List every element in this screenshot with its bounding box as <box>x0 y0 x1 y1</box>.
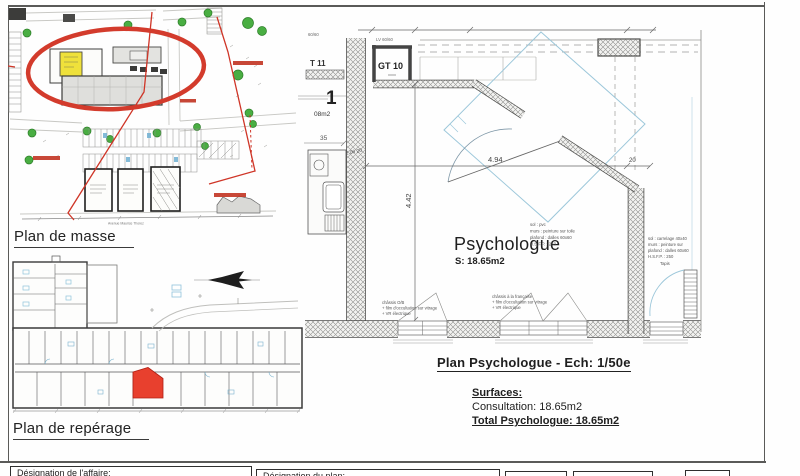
dim-442-text: 4.42 <box>404 193 413 208</box>
bottom-dimension-line <box>22 214 273 221</box>
reference-plan-title: Plan de repérage <box>13 420 149 440</box>
window-sills <box>393 340 688 343</box>
diagonal-door <box>448 129 560 182</box>
svg-text:murs : peinture sur toile: murs : peinture sur toile <box>530 229 576 234</box>
adjacent-room-specs: sol : carrelage 40x40 murs : peinture su… <box>648 236 689 266</box>
street-name: Avenue Maurice Thorez <box>108 222 144 226</box>
dim-20-text: 20 <box>629 158 636 164</box>
svg-text:+ VR électrique: + VR électrique <box>382 311 411 316</box>
surfaces-total: Total Psychologue: 18.65m2 <box>472 415 619 427</box>
svg-text:sol : pvc: sol : pvc <box>530 222 547 227</box>
dark-building-small <box>63 14 75 22</box>
plan-sheet: Avenue Maurice Thorez Plan de masse <box>0 0 800 476</box>
sink-counter <box>308 150 346 234</box>
window-adjacent <box>650 322 683 335</box>
label-one: 1 <box>326 88 337 109</box>
titleblock-affaire-label: Désignation de l'affaire: <box>17 468 111 476</box>
site-plan-title: Plan de masse <box>14 228 134 248</box>
driveway-curve <box>152 301 298 331</box>
titleblock-box-3 <box>505 471 567 476</box>
svg-text:châssis à la française: châssis à la française <box>492 294 533 299</box>
svg-text:H.S.F.P. : 250: H.S.F.P. : 250 <box>530 242 557 247</box>
label-35: 35 <box>320 135 328 142</box>
sheet-bottom-border <box>0 461 766 463</box>
psychologue-room-plan: GT 10 4.94 20 4.42 2.06 20 60/60 LV 60/6… <box>298 12 768 345</box>
titleblock-plan-box: Désignation du plan: <box>256 469 500 476</box>
reference-plan-title-text: Plan de repérage <box>13 420 131 437</box>
site-plan-drawing: Avenue Maurice Thorez <box>8 7 296 225</box>
highlighted-yellow-building <box>60 52 82 76</box>
svg-text:murs : peinture sur: murs : peinture sur <box>648 242 684 247</box>
dark-building-topleft <box>9 8 26 20</box>
svg-text:Tapis: Tapis <box>660 261 670 266</box>
bottom-right-door <box>650 270 697 318</box>
label-area-small: 08m2 <box>314 111 331 118</box>
entry-mark <box>52 256 60 262</box>
svg-text:plafond : dalles 60x60: plafond : dalles 60x60 <box>648 248 689 253</box>
window-note-right: châssis à la française + film d'occultat… <box>492 294 548 310</box>
room-specs: sol : pvc murs : peinture sur toile plaf… <box>530 222 576 247</box>
north-plane-symbol <box>208 271 252 289</box>
label-6060: 60/60 <box>308 32 319 37</box>
small-tree-marks <box>150 294 238 312</box>
gt10-label: GT 10 <box>378 61 403 71</box>
titleblock-plan-label: Désignation du plan: <box>263 471 345 476</box>
reference-floor-plan <box>8 252 304 417</box>
titleblock-box-4 <box>573 471 653 476</box>
parked-cars <box>130 66 167 74</box>
parking-strip-left <box>9 32 21 112</box>
svg-text:H.S.F.P. : 250: H.S.F.P. : 250 <box>648 254 674 259</box>
blue-marks <box>450 116 466 132</box>
site-plan-title-text: Plan de masse <box>14 228 116 245</box>
label-lv: LV 60/60 <box>376 37 393 42</box>
surfaces-consultation-text: Consultation: 18.65m2 <box>472 401 582 413</box>
upper-wing <box>13 262 87 330</box>
surfaces-heading: Surfaces: <box>472 387 522 399</box>
corridor-furniture <box>420 57 536 80</box>
gray-building-bottom-right <box>217 196 260 213</box>
titleblock-box-5 <box>685 470 730 476</box>
detail-plan-caption: Plan Psychologue - Ech: 1/50e <box>437 355 631 372</box>
window-note-left: châssis O/B + film d'occultation sur vit… <box>382 300 438 316</box>
svg-text:+ film d'occultation sur vitra: + film d'occultation sur vitrage <box>492 300 548 305</box>
svg-text:châssis O/B: châssis O/B <box>382 300 405 305</box>
left-hatch-strip <box>306 70 344 79</box>
annex-court <box>87 265 117 323</box>
top-dimension-line <box>358 27 656 33</box>
surfaces-consultation: Consultation: 18.65m2 <box>472 401 582 413</box>
scale-line <box>13 409 300 413</box>
detail-plan-caption-text: Plan Psychologue - Ech: 1/50e <box>437 355 631 370</box>
svg-text:+ film d'occultation sur vitra: + film d'occultation sur vitrage <box>382 306 438 311</box>
svg-text:+ VR électrique: + VR électrique <box>492 305 521 310</box>
surfaces-heading-text: Surfaces: <box>472 387 522 399</box>
dim-494-text: 4.94 <box>488 155 503 164</box>
legend-blue-boxes <box>172 285 181 297</box>
room-surface: S: 18.65m2 <box>455 256 505 267</box>
titleblock-affaire-box: Désignation de l'affaire: <box>10 466 252 476</box>
svg-text:plafond : dalles 60x60: plafond : dalles 60x60 <box>530 235 572 240</box>
building-cluster <box>50 47 167 105</box>
label-t11: T 11 <box>310 59 326 68</box>
svg-text:sol : carrelage 40x40: sol : carrelage 40x40 <box>648 236 688 241</box>
walls <box>305 38 701 334</box>
surfaces-total-text: Total Psychologue: 18.65m2 <box>472 415 619 427</box>
